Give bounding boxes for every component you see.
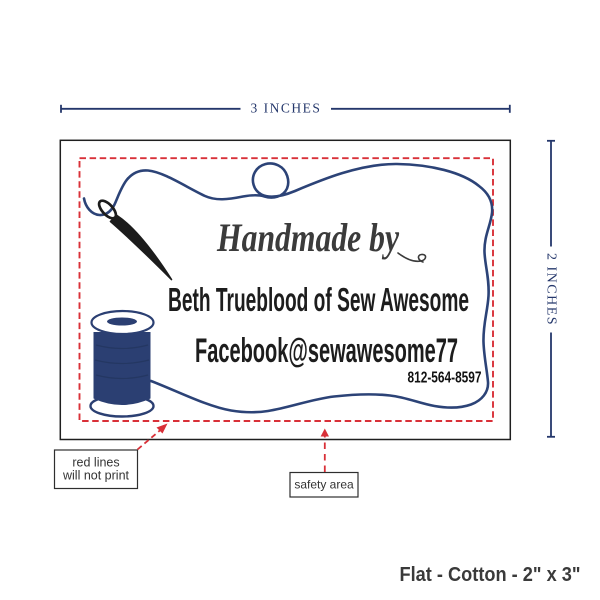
svg-text:safety area: safety area xyxy=(294,478,354,492)
svg-text:812-564-8597: 812-564-8597 xyxy=(408,370,482,387)
svg-text:Handmade by: Handmade by xyxy=(216,215,399,260)
svg-text:will not print: will not print xyxy=(62,468,130,482)
svg-text:Beth Trueblood of Sew Awesome: Beth Trueblood of Sew Awesome xyxy=(168,281,469,318)
svg-text:Flat - Cotton - 2" x 3": Flat - Cotton - 2" x 3" xyxy=(400,564,581,586)
svg-text:Facebook@sewawesome77: Facebook@sewawesome77 xyxy=(195,332,458,370)
svg-text:3 INCHES: 3 INCHES xyxy=(251,101,322,116)
svg-text:2 INCHES: 2 INCHES xyxy=(544,253,559,326)
